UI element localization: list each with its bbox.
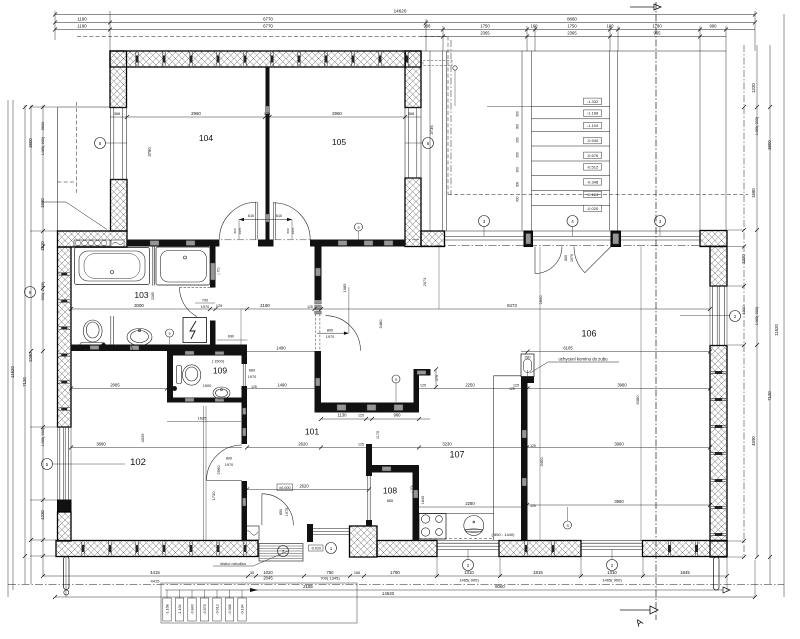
svg-text:125: 125	[251, 385, 257, 389]
svg-text:300: 300	[516, 167, 520, 173]
svg-text:3800: 3800	[28, 138, 33, 148]
svg-text:2180: 2180	[260, 303, 270, 308]
svg-text:690: 690	[228, 334, 234, 338]
svg-text:1465( 900): 1465( 900)	[755, 306, 759, 325]
svg-text:-1.104: -1.104	[178, 604, 182, 614]
svg-text:6770: 6770	[263, 24, 273, 29]
svg-text:3450: 3450	[539, 457, 544, 467]
svg-text:900( 1465): 900( 1465)	[41, 281, 45, 300]
svg-text:1130: 1130	[337, 413, 347, 418]
svg-text:4590: 4590	[751, 436, 756, 446]
svg-text:2045: 2045	[263, 576, 273, 581]
svg-text:-1.104: -1.104	[587, 123, 599, 128]
svg-text:109: 109	[213, 366, 227, 376]
svg-text:1970: 1970	[326, 335, 334, 339]
svg-text:125: 125	[420, 383, 426, 387]
svg-text:1625: 1625	[198, 416, 208, 421]
svg-text:-0.612: -0.612	[216, 604, 220, 614]
svg-text:800: 800	[327, 328, 333, 332]
svg-text:800: 800	[286, 228, 290, 233]
svg-text:3735: 3735	[429, 125, 434, 135]
svg-text:-0.194: -0.194	[241, 604, 245, 614]
svg-text:1970: 1970	[570, 254, 574, 262]
svg-text:800: 800	[564, 255, 568, 261]
svg-text:1970: 1970	[201, 305, 209, 309]
svg-text:-0.020: -0.020	[311, 547, 321, 551]
svg-text:( 70): ( 70)	[217, 268, 221, 275]
svg-text:1220: 1220	[741, 254, 746, 264]
svg-text:125: 125	[530, 444, 536, 448]
svg-text:280: 280	[525, 355, 531, 359]
svg-text:-0.020: -0.020	[587, 206, 599, 211]
svg-text:1490: 1490	[277, 382, 287, 387]
svg-text:1190: 1190	[77, 24, 87, 29]
svg-text:908: 908	[424, 24, 432, 29]
svg-text:2280: 2280	[465, 501, 475, 506]
svg-text:1220: 1220	[40, 510, 45, 520]
svg-text:11520: 11520	[10, 366, 15, 378]
svg-text:2365: 2365	[480, 31, 490, 36]
svg-text:660: 660	[249, 369, 255, 373]
svg-text:1985: 1985	[342, 283, 347, 293]
svg-text:7120: 7120	[22, 377, 27, 387]
svg-text:125: 125	[358, 442, 364, 446]
svg-text:1465( 900): 1465( 900)	[459, 577, 479, 582]
svg-text:8060: 8060	[495, 584, 505, 589]
svg-text:1465( 900): 1465( 900)	[41, 427, 45, 446]
svg-text:3000: 3000	[134, 303, 144, 308]
svg-text:4415: 4415	[151, 579, 161, 584]
svg-text:101: 101	[305, 427, 319, 437]
svg-text:1020: 1020	[263, 570, 273, 575]
svg-text:106: 106	[581, 329, 596, 339]
svg-text:-0.940: -0.940	[587, 138, 599, 143]
svg-text:2620: 2620	[298, 441, 308, 446]
svg-text:1680: 1680	[751, 188, 756, 198]
svg-text:6105: 6105	[563, 346, 573, 351]
svg-text:3960: 3960	[617, 382, 627, 387]
svg-text:2285: 2285	[151, 292, 155, 300]
svg-text:3790: 3790	[147, 147, 152, 157]
svg-text:610: 610	[276, 214, 282, 218]
svg-text:2365: 2365	[567, 31, 577, 36]
svg-text:2250: 2250	[465, 382, 475, 387]
svg-text:125: 125	[358, 414, 364, 418]
svg-text:2073: 2073	[423, 278, 427, 286]
svg-text:2960: 2960	[216, 465, 221, 475]
svg-text:1465( 900): 1465( 900)	[755, 116, 759, 135]
svg-text:7120: 7120	[767, 391, 772, 401]
svg-text:1815: 1815	[533, 570, 543, 575]
svg-text:1970: 1970	[291, 227, 295, 234]
svg-text:3960: 3960	[614, 499, 624, 504]
svg-text:105: 105	[332, 137, 346, 147]
svg-text:980: 980	[394, 413, 402, 418]
svg-text:-0.840: -0.840	[191, 604, 195, 614]
svg-text:850: 850	[279, 509, 283, 515]
svg-text:14620: 14620	[394, 9, 407, 14]
svg-text:4415: 4415	[150, 570, 160, 575]
svg-text:-0.676: -0.676	[587, 153, 599, 158]
svg-text:2620: 2620	[299, 483, 309, 488]
svg-text:4026: 4026	[140, 433, 145, 443]
svg-text:3680: 3680	[96, 441, 106, 446]
svg-text:-1.168: -1.168	[166, 604, 170, 614]
svg-text:1970: 1970	[225, 463, 233, 467]
svg-text:2185: 2185	[303, 584, 313, 589]
svg-text:1840: 1840	[421, 496, 425, 504]
svg-text:160: 160	[607, 24, 615, 29]
svg-text:-0.368: -0.368	[228, 604, 232, 614]
svg-text:11520: 11520	[774, 324, 779, 336]
svg-text:165: 165	[354, 571, 360, 575]
svg-text:700( 1345): 700( 1345)	[320, 576, 340, 581]
svg-text:300: 300	[516, 124, 520, 130]
svg-text:1750: 1750	[480, 24, 490, 29]
svg-text:1750: 1750	[567, 24, 577, 29]
svg-text:1490: 1490	[276, 346, 286, 351]
svg-text:300: 300	[516, 152, 520, 158]
svg-text:1310: 1310	[741, 305, 746, 315]
svg-text:125: 125	[530, 504, 536, 508]
svg-text:( 1500): ( 1500)	[212, 359, 225, 363]
svg-text:2065: 2065	[110, 382, 120, 387]
svg-text:3230: 3230	[442, 441, 452, 446]
svg-text:750: 750	[327, 570, 335, 575]
svg-text:1730: 1730	[211, 491, 216, 501]
svg-text:107: 107	[449, 450, 464, 460]
svg-text:700: 700	[202, 299, 208, 303]
svg-text:1970: 1970	[238, 227, 242, 234]
svg-text:965: 965	[654, 31, 662, 36]
svg-text:1220: 1220	[751, 83, 756, 93]
svg-text:-0.876: -0.876	[203, 604, 207, 614]
svg-text:865: 865	[387, 499, 393, 503]
svg-text:6770: 6770	[263, 17, 273, 22]
svg-text:300: 300	[516, 137, 520, 143]
svg-text:9600: 9600	[41, 122, 45, 130]
svg-text:300: 300	[516, 182, 520, 188]
svg-text:300: 300	[516, 196, 520, 202]
svg-text:1170: 1170	[376, 431, 380, 439]
svg-text:1970: 1970	[248, 375, 256, 379]
svg-text:3960: 3960	[614, 441, 624, 446]
svg-text:108: 108	[383, 486, 397, 496]
svg-text:1780: 1780	[652, 24, 662, 29]
svg-text:1500: 1500	[203, 384, 211, 388]
svg-text:3480: 3480	[378, 319, 383, 329]
svg-text:( 850 - 1440): ( 850 - 1440)	[492, 532, 516, 537]
svg-text:990: 990	[710, 24, 718, 29]
svg-text:1220: 1220	[40, 241, 45, 251]
svg-text:8860: 8860	[567, 17, 577, 22]
svg-text:2280: 2280	[28, 352, 33, 362]
svg-text:30: 30	[250, 571, 254, 575]
svg-text:1780: 1780	[390, 570, 400, 575]
svg-text:368: 368	[114, 112, 120, 116]
svg-text:125: 125	[216, 304, 222, 308]
svg-text:1680: 1680	[40, 198, 45, 208]
svg-text:103: 103	[134, 290, 148, 300]
svg-text:1845: 1845	[680, 570, 690, 575]
svg-text:1465( 900): 1465( 900)	[41, 136, 45, 155]
svg-text:-0.512: -0.512	[587, 165, 599, 170]
svg-text:14620: 14620	[382, 591, 395, 596]
svg-text:6380: 6380	[635, 395, 640, 405]
svg-text:375: 375	[435, 375, 439, 381]
svg-text:125: 125	[307, 305, 313, 309]
svg-text:-1.168: -1.168	[587, 111, 599, 116]
svg-text:1975: 1975	[285, 508, 289, 516]
svg-text:-0.184: -0.184	[587, 192, 599, 197]
svg-text:-1.332: -1.332	[587, 99, 599, 104]
svg-text:102: 102	[130, 457, 146, 468]
svg-text:čistící rohožka: čistící rohožka	[220, 561, 246, 566]
svg-text:368: 368	[408, 112, 414, 116]
svg-text:uchycení komínu do zubu: uchycení komínu do zubu	[559, 357, 609, 362]
svg-text:2960: 2960	[191, 111, 201, 116]
svg-text:( 70): ( 70)	[410, 485, 414, 492]
svg-text:610: 610	[248, 214, 254, 218]
svg-text:2960: 2960	[332, 111, 342, 116]
svg-text:1190: 1190	[77, 17, 87, 22]
svg-text:104: 104	[199, 133, 213, 143]
svg-text:1465( 900): 1465( 900)	[602, 577, 622, 582]
svg-text:125: 125	[509, 387, 515, 391]
svg-text:800: 800	[233, 228, 237, 233]
svg-text:300: 300	[516, 111, 520, 117]
svg-text:-0.348: -0.348	[587, 180, 599, 185]
svg-text:8473: 8473	[507, 303, 517, 308]
svg-text:2850: 2850	[538, 295, 543, 305]
svg-text:3800: 3800	[767, 140, 772, 150]
svg-text:800: 800	[226, 457, 232, 461]
